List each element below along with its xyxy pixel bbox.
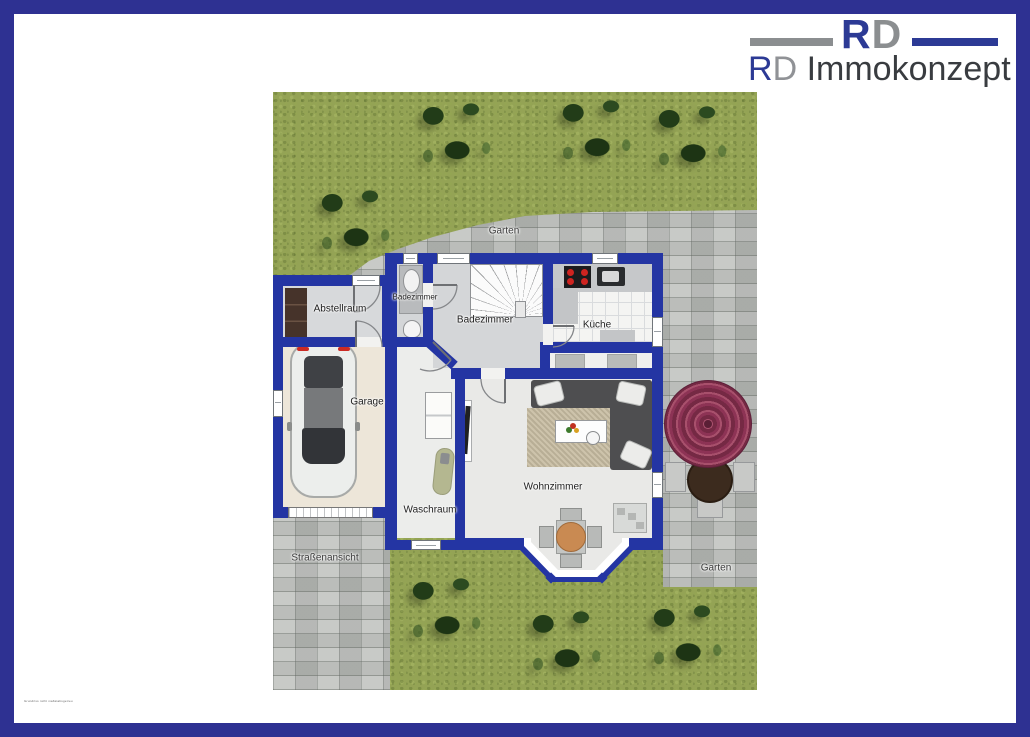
logo-divider-gray — [750, 38, 833, 46]
logo-monogram: RD — [841, 14, 902, 55]
door-arcs — [273, 92, 757, 690]
logo-company-rest: Immokonzept — [797, 50, 1011, 88]
logo-company-name: RD Immokonzept — [748, 52, 1011, 86]
label-strassenansicht: Straßenansicht — [291, 553, 358, 564]
label-abstellraum: Abstellraum — [314, 304, 367, 315]
label-badezimmer: Badezimmer — [457, 315, 513, 326]
logo-company-d: D — [773, 50, 798, 88]
label-waschraum: Waschraum — [404, 505, 457, 516]
floor-plan: Garten Abstellraum Badezimmer Badezimmer… — [273, 92, 757, 690]
label-badezimmer-klein: Badezimmer — [393, 293, 438, 302]
fine-print: Grundriss nicht maßstabsgetreu — [24, 699, 73, 703]
label-garten-top: Garten — [489, 226, 520, 237]
logo-company-r: R — [748, 50, 773, 88]
label-garage: Garage — [350, 397, 383, 408]
label-garten-bottom: Garten — [701, 563, 732, 574]
label-wohnzimmer: Wohnzimmer — [524, 482, 583, 493]
label-kueche: Küche — [583, 320, 611, 331]
logo-divider-blue — [912, 38, 998, 46]
